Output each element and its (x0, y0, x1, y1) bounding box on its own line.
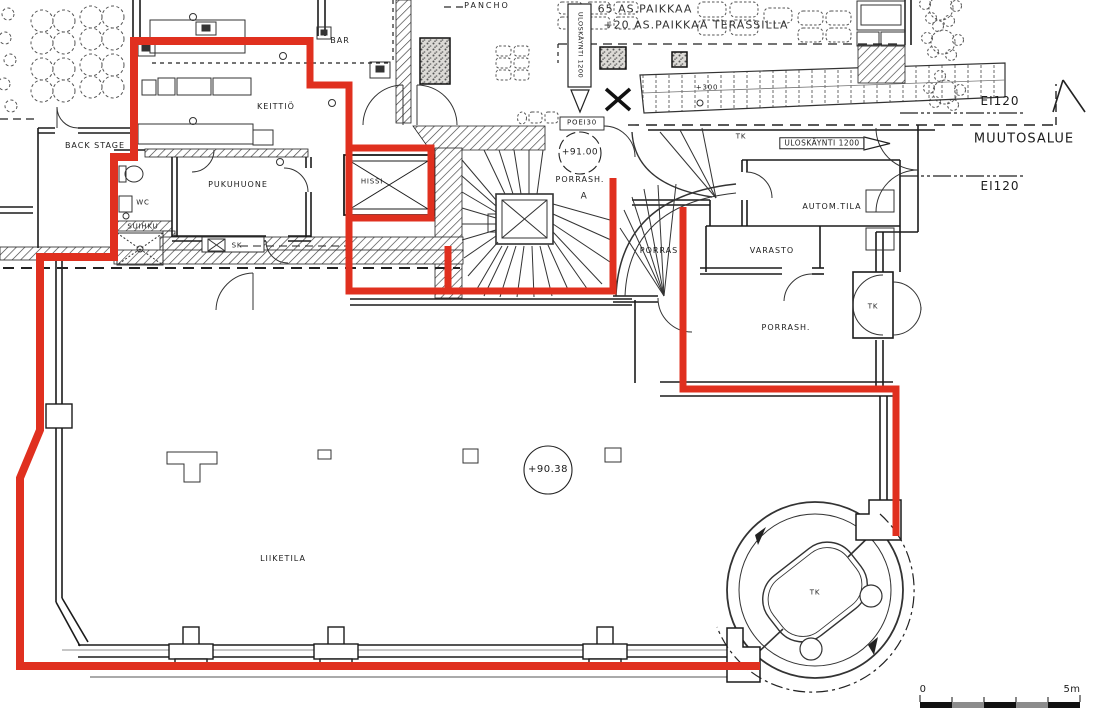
tk-closet-label: TK (868, 304, 878, 311)
room-label-wc: WC (136, 200, 149, 207)
terrace-tables-left (0, 6, 124, 112)
scale-zero-label: 0 (920, 685, 927, 695)
fire-rating-ei120-top: EI120 (980, 95, 1019, 107)
renovation-area-label: MUUTOSALUE (974, 133, 1074, 146)
room-label-porras: PORRAS (640, 247, 678, 255)
terrace-deck (640, 63, 1005, 113)
room-label-autom-tila: AUTOM.TILA (802, 203, 861, 211)
fire-door-label-poei30: POEI30 (567, 120, 597, 127)
floor-cross-symbol (606, 89, 630, 110)
stair-b-porras (616, 128, 736, 296)
exit-sign-vertical-label: ULOSKÄYNTI 1200 (577, 12, 584, 78)
room-label-suihku: SUIHKU (127, 224, 158, 231)
seat-count-line1: 65 AS.PAIKKAA (598, 4, 693, 15)
floor-plan-drawing (0, 0, 1102, 726)
room-label-liiketila: LIIKETILA (260, 555, 306, 563)
stairwell-a-label: PORRASH. (556, 176, 605, 184)
level-mark-upper: +91.00 (562, 149, 598, 158)
level-mark-plus300: +300 (696, 85, 718, 92)
exit-arrow-down-icon (571, 90, 589, 112)
exit-sign-horizontal-label: ULOSKÄYNTI 1200 (779, 137, 864, 149)
level-mark-lower: +90.38 (528, 465, 568, 475)
fire-rating-ei120-bottom: EI120 (980, 180, 1019, 192)
room-label-hissi: HISSI (361, 179, 383, 186)
room-label-pukuhuone: PUKUHUONE (208, 181, 268, 189)
room-label-pancho: PANCHO (464, 2, 510, 10)
scale-five-label: 5m (1063, 685, 1080, 695)
seat-count-line2: +20 AS.PAIKKAA TERASSILLA (603, 20, 788, 31)
stairwell-lower-label: PORRASH. (762, 324, 811, 332)
dashed-boundaries (0, 0, 1085, 692)
room-label-bar: BAR (330, 37, 350, 45)
scale-bar (920, 695, 1080, 708)
elevator-hissi (344, 155, 434, 215)
doors (57, 85, 921, 335)
facade-pilasters (46, 404, 627, 669)
stairwell-a-letter: A (581, 193, 588, 202)
room-label-varasto: VARASTO (750, 247, 794, 255)
room-label-keittio: KEITTIÖ (257, 103, 295, 111)
tk-tower-label: TK (810, 590, 820, 597)
tk-corridor-label: TK (736, 134, 746, 141)
room-label-sk: SK (232, 243, 243, 250)
room-label-back-stage: BACK STAGE (65, 142, 125, 150)
floor-plan: PANCHO BAR KEITTIÖ BACK STAGE PUKUHUONE … (0, 0, 1102, 726)
